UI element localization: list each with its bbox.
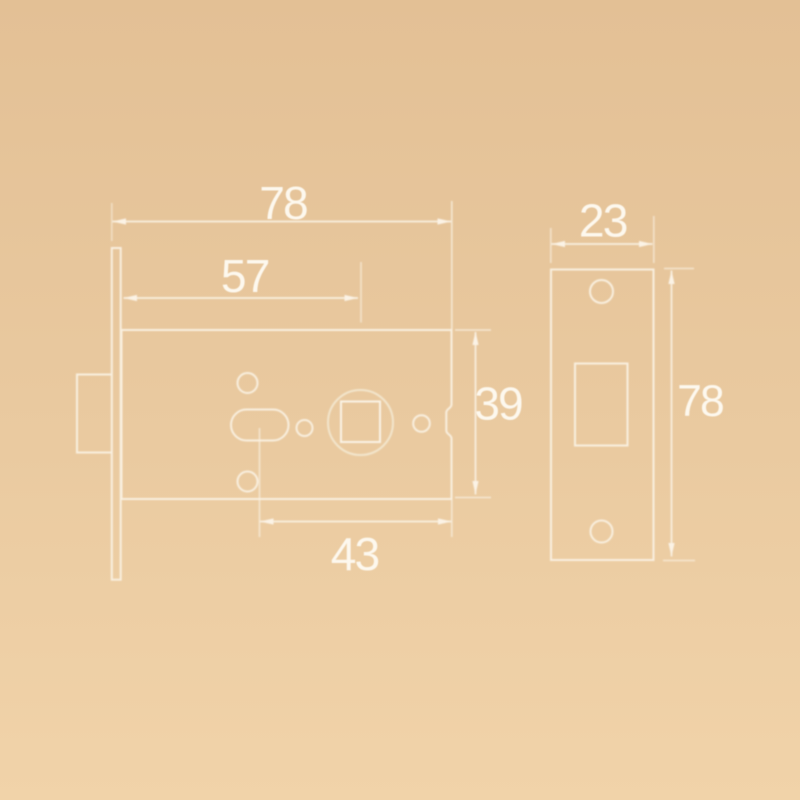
svg-text:43: 43 <box>331 528 379 580</box>
svg-text:78: 78 <box>677 377 723 426</box>
svg-text:57: 57 <box>221 250 269 302</box>
svg-text:23: 23 <box>579 195 627 247</box>
svg-text:39: 39 <box>474 378 522 430</box>
svg-text:78: 78 <box>259 177 307 229</box>
